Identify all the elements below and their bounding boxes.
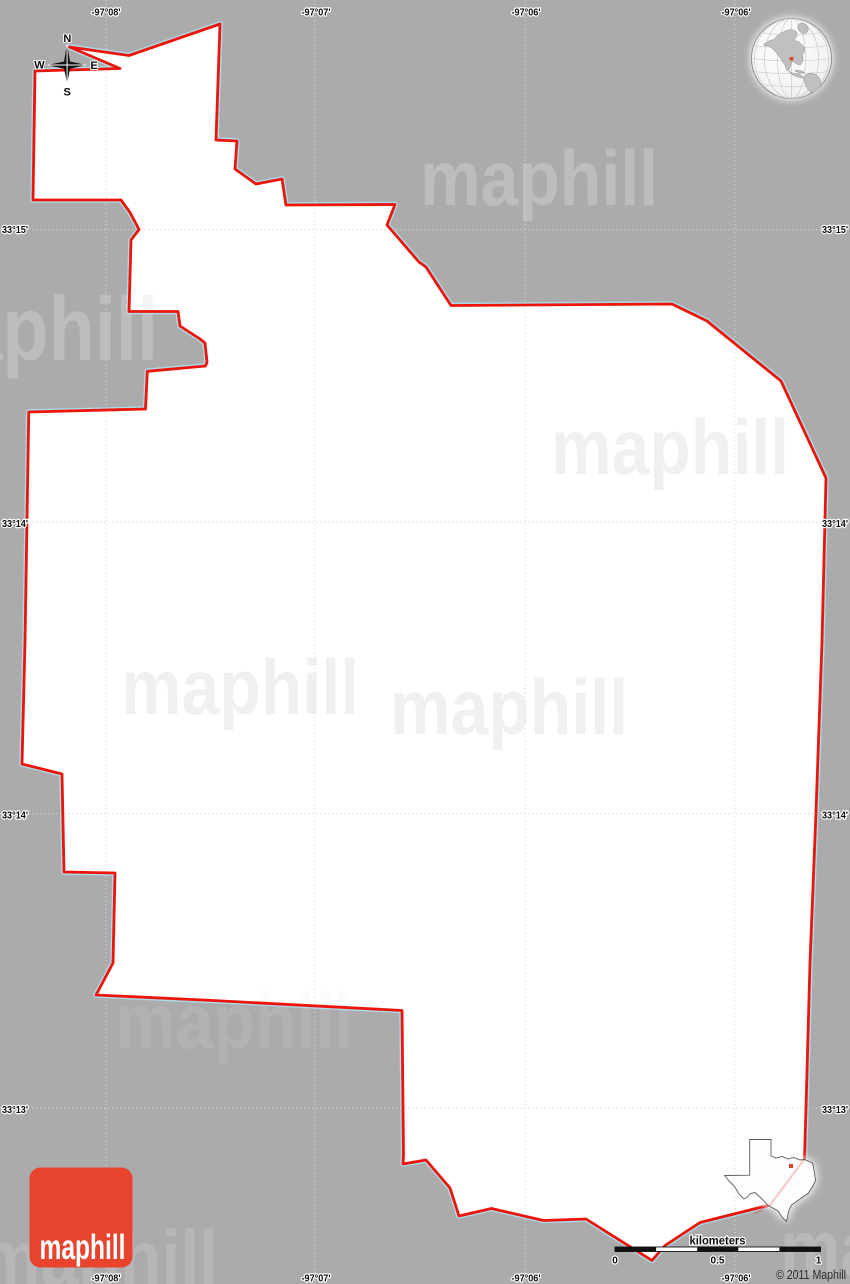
svg-text:© 2011 Maphill: © 2011 Maphill <box>776 1268 846 1282</box>
svg-text:33°14': 33°14' <box>2 811 28 822</box>
svg-text:0.5: 0.5 <box>711 1256 725 1267</box>
svg-text:-97°06': -97°06' <box>512 8 541 19</box>
svg-text:33°15': 33°15' <box>2 225 28 236</box>
svg-text:33°13': 33°13' <box>2 1105 28 1116</box>
svg-text:maphill: maphill <box>115 977 353 1065</box>
svg-text:-97°06': -97°06' <box>722 1274 751 1284</box>
svg-text:maphill: maphill <box>121 643 359 731</box>
svg-text:S: S <box>64 87 71 99</box>
svg-text:maphill: maphill <box>551 403 789 491</box>
svg-text:33°14': 33°14' <box>2 519 28 530</box>
svg-text:33°15': 33°15' <box>822 225 848 236</box>
svg-text:-97°07': -97°07' <box>302 8 331 19</box>
svg-text:-97°07': -97°07' <box>302 1274 331 1284</box>
svg-text:maphill: maphill <box>420 134 658 222</box>
svg-text:maphill: maphill <box>0 280 158 380</box>
svg-text:33°13': 33°13' <box>822 1105 848 1116</box>
svg-text:-97°08': -97°08' <box>92 8 121 19</box>
svg-text:33°14': 33°14' <box>822 811 848 822</box>
svg-text:-97°06': -97°06' <box>722 8 751 19</box>
svg-text:N: N <box>63 33 71 45</box>
svg-text:-97°06': -97°06' <box>512 1274 541 1284</box>
svg-text:E: E <box>90 60 97 72</box>
svg-text:W: W <box>34 60 45 72</box>
svg-text:kilometers: kilometers <box>690 1236 746 1248</box>
svg-text:33°14': 33°14' <box>822 519 848 530</box>
svg-text:maphill: maphill <box>390 663 628 751</box>
svg-text:1: 1 <box>816 1256 822 1267</box>
svg-text:maphill: maphill <box>40 1228 126 1267</box>
svg-text:0: 0 <box>612 1256 618 1267</box>
svg-text:-97°08': -97°08' <box>92 1274 121 1284</box>
